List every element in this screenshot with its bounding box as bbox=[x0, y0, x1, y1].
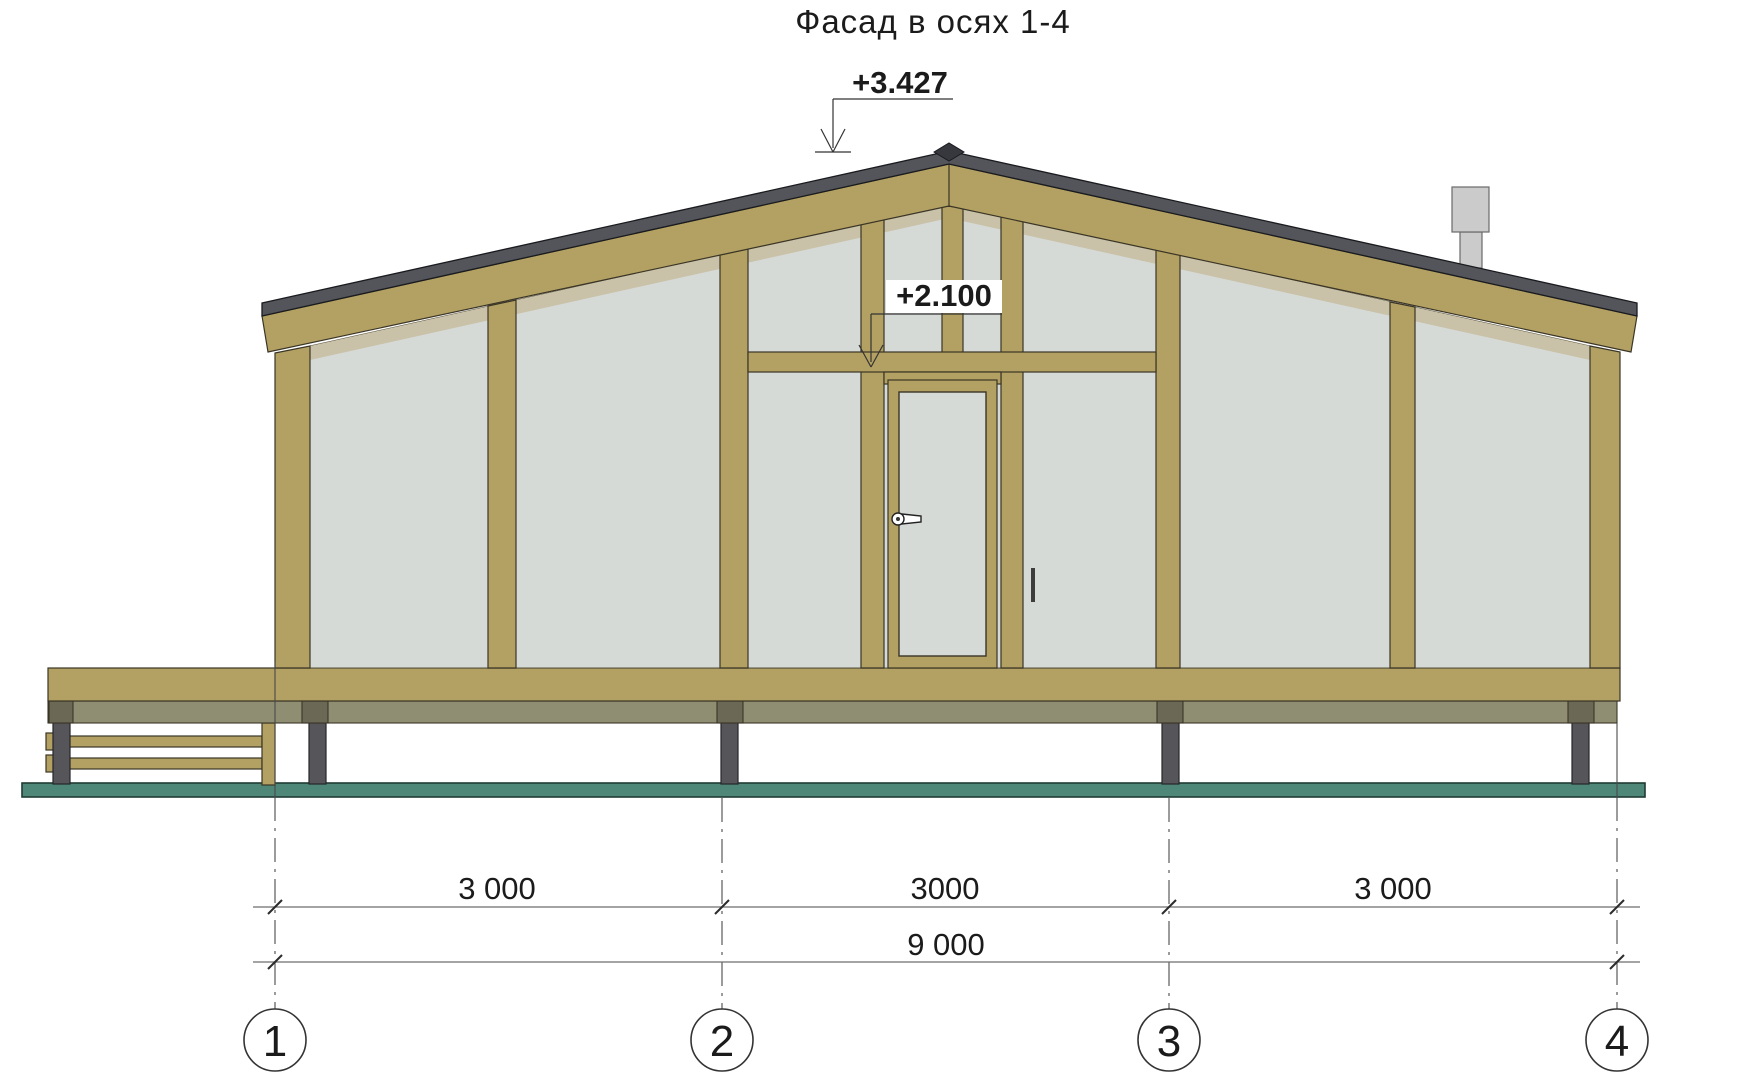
axis-bubbles: 1 2 3 4 bbox=[244, 1009, 1648, 1071]
axis-label-4: 4 bbox=[1605, 1017, 1629, 1066]
facade-elevation-sheet: Фасад в осях 1-4 bbox=[0, 0, 1745, 1080]
chimney-cap bbox=[1452, 187, 1489, 232]
railing-rail-bottom bbox=[52, 758, 262, 769]
foundation-piles bbox=[53, 722, 1589, 784]
pile-cap bbox=[717, 701, 743, 723]
chimney bbox=[1452, 187, 1489, 268]
axis-label-3: 3 bbox=[1157, 1017, 1181, 1066]
pile-cap bbox=[1157, 701, 1183, 723]
dim-segment-2: 3000 bbox=[911, 871, 980, 906]
pile bbox=[1162, 722, 1179, 784]
dim-total: 9 000 bbox=[907, 927, 985, 962]
rim-band bbox=[48, 701, 1617, 723]
elevation-ridge-value: +3.427 bbox=[852, 65, 948, 100]
corner-post-right bbox=[1590, 346, 1620, 668]
dimension-lines: 3 000 3000 3 000 9 000 bbox=[253, 871, 1640, 969]
floor-deck bbox=[48, 668, 1620, 723]
elevation-mark-ridge: +3.427 bbox=[815, 65, 953, 152]
pile bbox=[721, 722, 738, 784]
door-jamb-right bbox=[1001, 216, 1023, 668]
pile bbox=[309, 722, 326, 784]
axis-label-2: 2 bbox=[710, 1017, 734, 1066]
door-jamb-left bbox=[861, 219, 884, 668]
dim-segment-1: 3 000 bbox=[458, 871, 536, 906]
door-keyhole bbox=[896, 517, 900, 521]
door-stop-mark bbox=[1031, 568, 1035, 602]
pile-cap bbox=[1568, 701, 1594, 723]
deck-railing bbox=[46, 723, 275, 785]
door-handle-lever bbox=[902, 514, 921, 524]
railing-post bbox=[262, 723, 275, 785]
railing-rail-top bbox=[52, 736, 262, 747]
door-glass bbox=[899, 392, 986, 656]
pile-cap bbox=[302, 701, 328, 723]
transom-beam bbox=[748, 352, 1156, 372]
facade-drawing: Фасад в осях 1-4 bbox=[0, 0, 1745, 1080]
chimney-pipe bbox=[1460, 232, 1482, 268]
mullion bbox=[488, 300, 516, 668]
mullion bbox=[1390, 302, 1415, 668]
pile bbox=[53, 722, 70, 784]
axis-label-1: 1 bbox=[263, 1017, 287, 1066]
mullion-axis-3 bbox=[1156, 250, 1180, 668]
corner-post-left bbox=[275, 346, 310, 668]
pile bbox=[1572, 722, 1589, 784]
elevation-door-value: +2.100 bbox=[896, 278, 992, 313]
mullion-axis-2 bbox=[720, 249, 748, 668]
dim-segment-3: 3 000 bbox=[1354, 871, 1432, 906]
floor-beam bbox=[48, 668, 1620, 701]
drawing-title: Фасад в осях 1-4 bbox=[795, 3, 1071, 40]
pile-cap bbox=[49, 701, 73, 723]
